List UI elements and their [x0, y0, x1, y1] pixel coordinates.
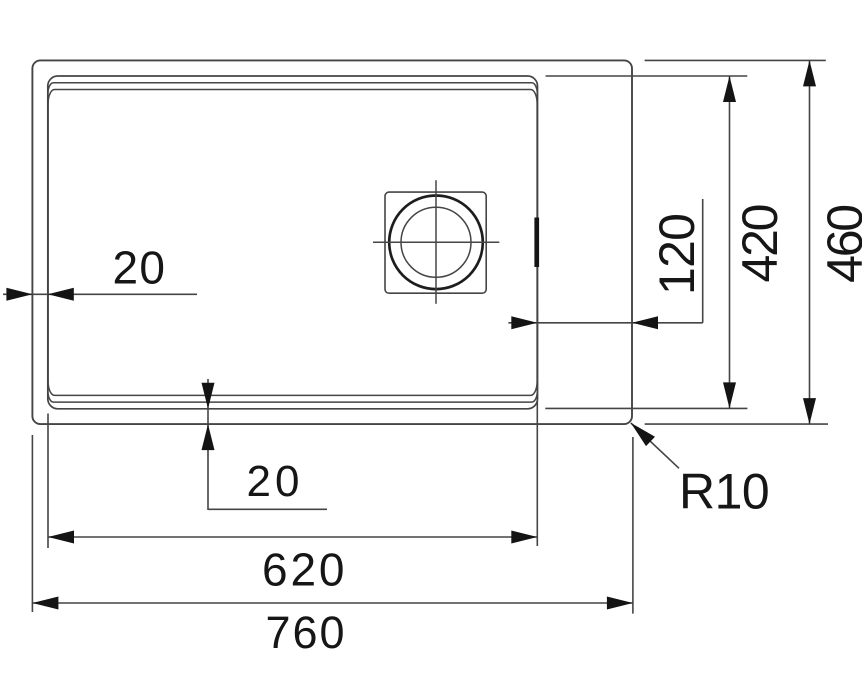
svg-text:R10: R10: [679, 464, 770, 520]
svg-text:20: 20: [113, 242, 166, 294]
svg-text:20: 20: [247, 457, 300, 506]
svg-text:120: 120: [649, 213, 705, 295]
svg-text:760: 760: [266, 607, 345, 658]
svg-text:620: 620: [262, 544, 345, 596]
svg-text:420: 420: [732, 204, 788, 283]
svg-text:460: 460: [817, 204, 862, 283]
